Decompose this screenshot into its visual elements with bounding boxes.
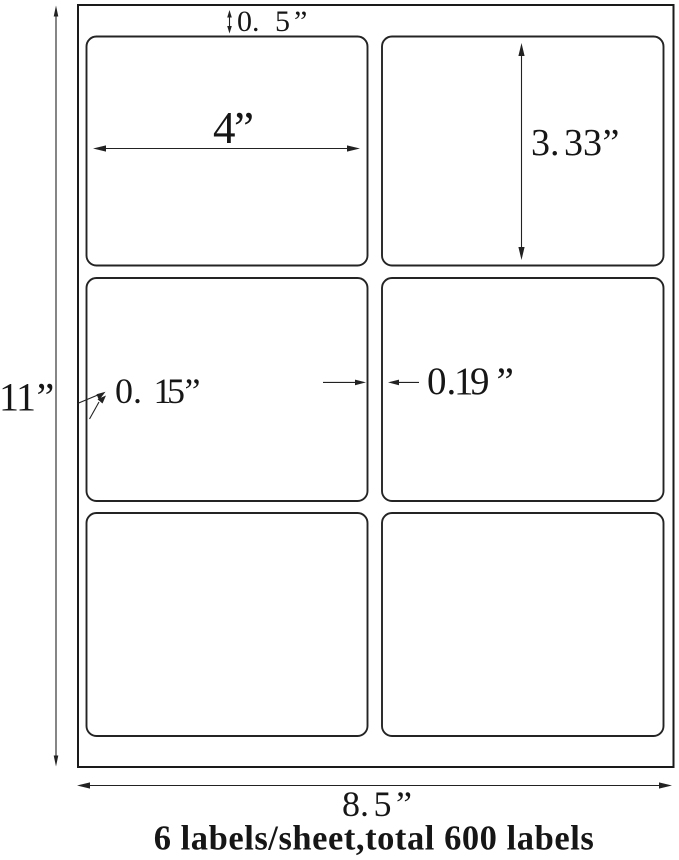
svg-text:6 labels/sheet,total 600 label: 6 labels/sheet,total 600 labels [154,820,595,858]
svg-text:4”: 4” [213,103,254,153]
svg-text:8.5”: 8.5” [342,784,412,824]
svg-text:0.19”: 0.19” [427,360,514,403]
svg-text:11”: 11” [0,375,54,420]
svg-text:0.15”: 0.15” [115,371,200,411]
svg-text:3.33”: 3.33” [531,122,619,164]
